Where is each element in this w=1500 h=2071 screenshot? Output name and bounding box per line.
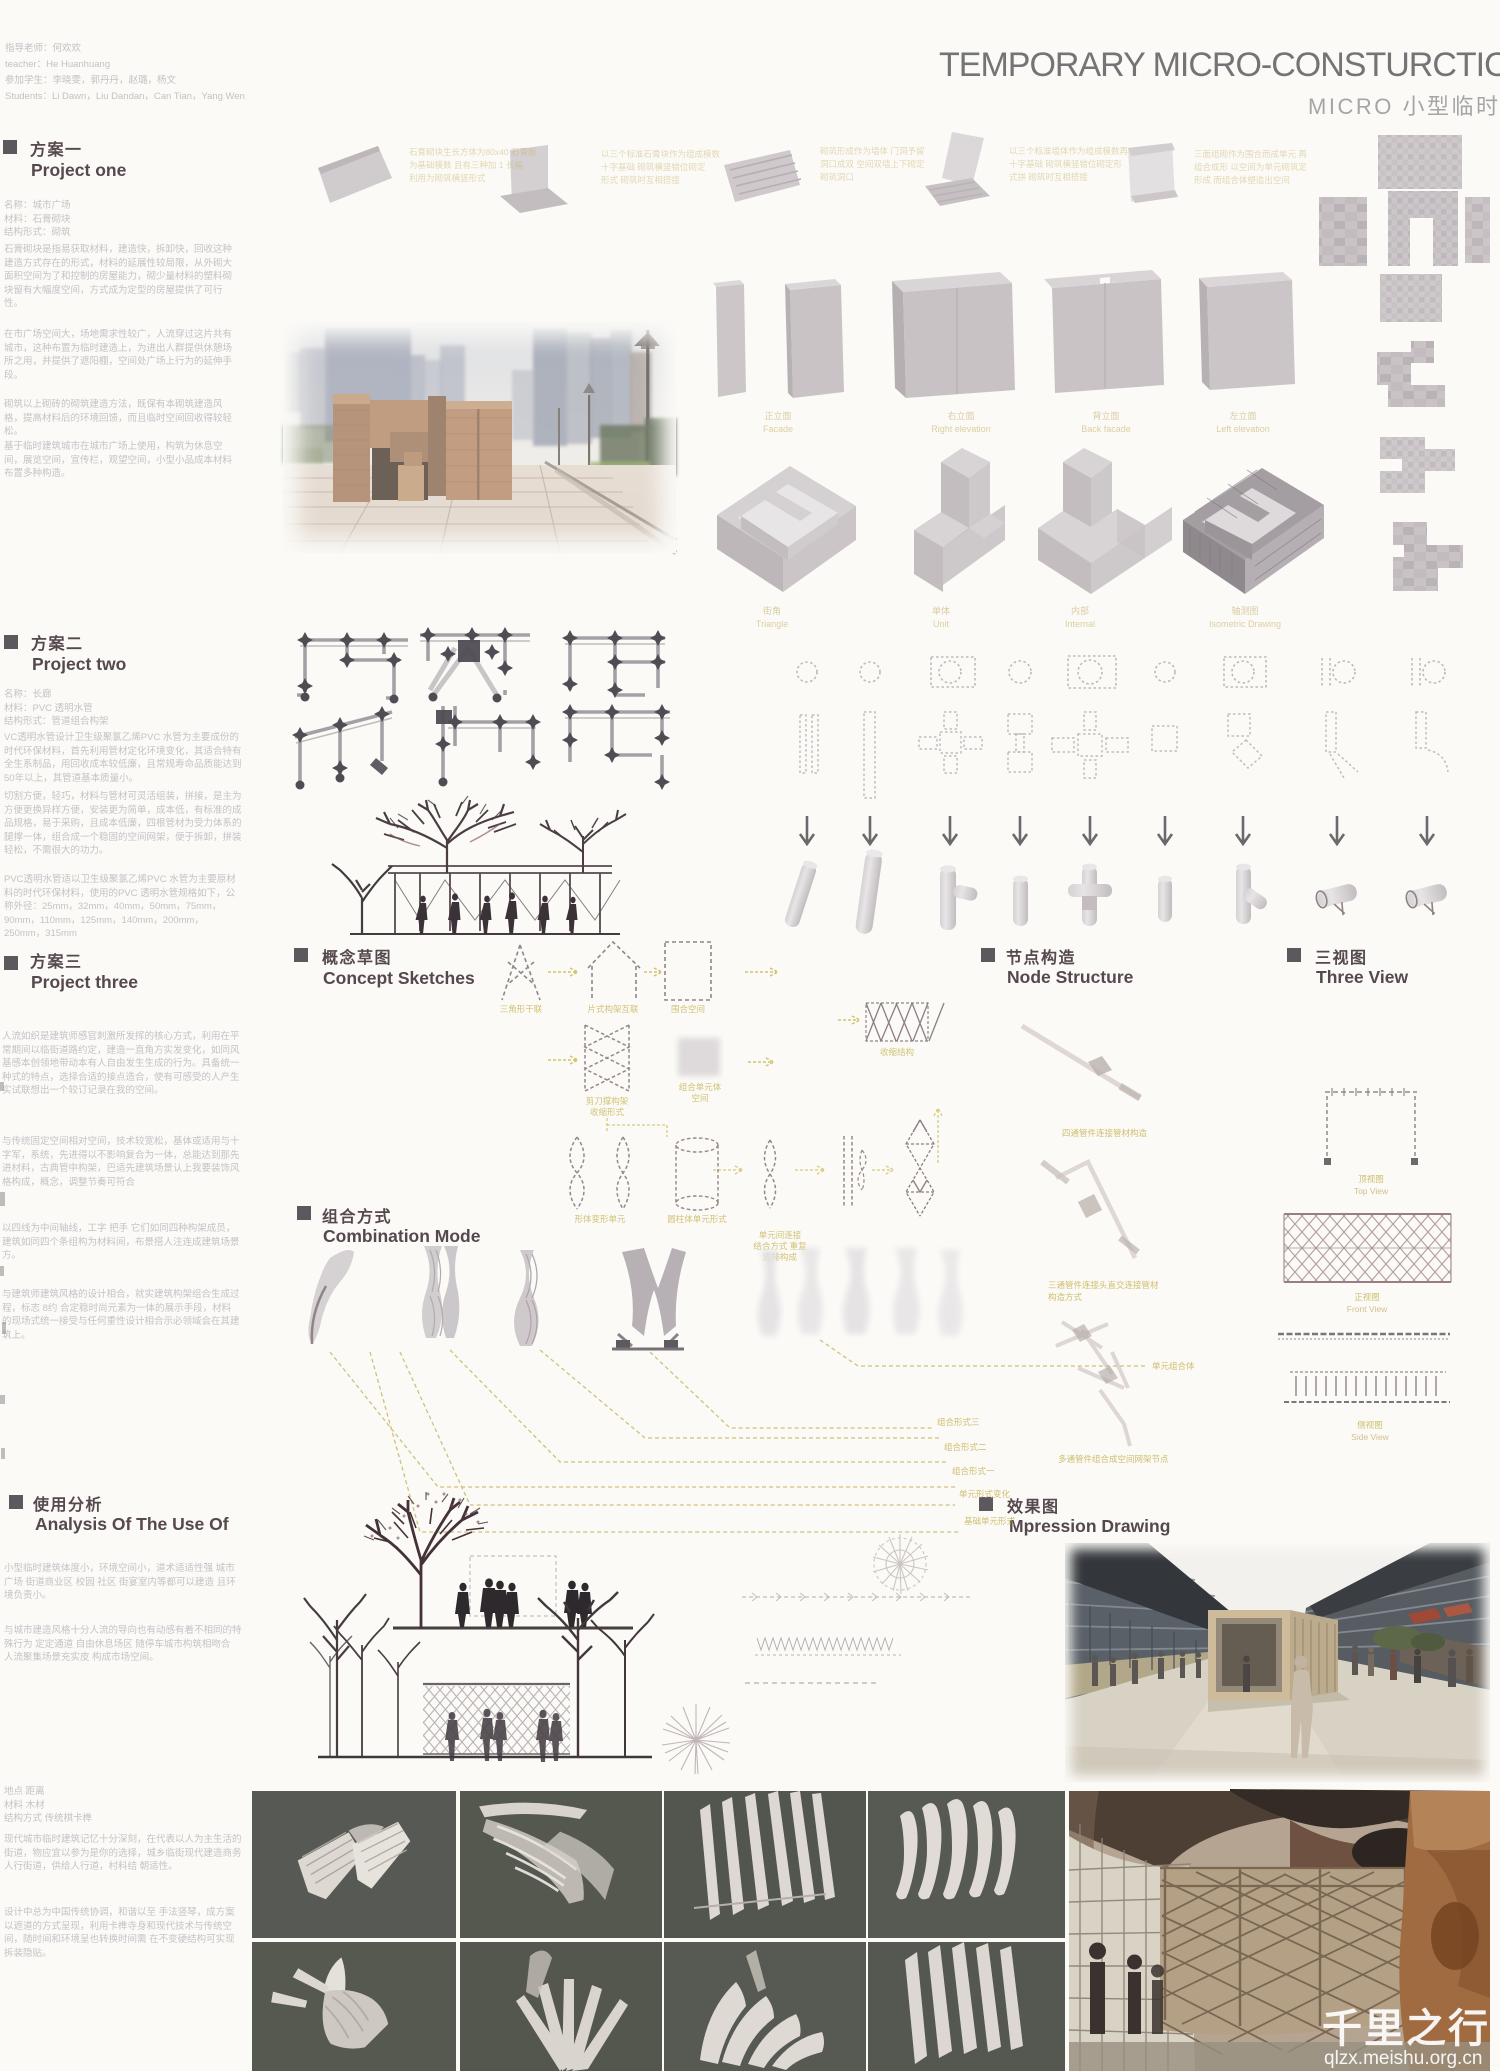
svg-text:街角: 街角 bbox=[763, 605, 781, 616]
svg-text:多通管件组合成空间网架节点: 多通管件组合成空间网架节点 bbox=[1058, 1454, 1169, 1464]
svg-text:结合方式 重复: 结合方式 重复 bbox=[753, 1241, 807, 1251]
svg-text:正立面: 正立面 bbox=[764, 410, 791, 421]
svg-text:单元组合体: 单元组合体 bbox=[1152, 1361, 1195, 1371]
svg-text:Back facade: Back facade bbox=[1081, 424, 1131, 434]
svg-text:石膏砌块生长方体为80x40 石膏板: 石膏砌块生长方体为80x40 石膏板 bbox=[409, 147, 537, 157]
svg-text:qlzx.meishu.org.cn: qlzx.meishu.org.cn bbox=[1324, 2048, 1482, 2069]
svg-text:Unit: Unit bbox=[933, 619, 950, 629]
svg-text:左立面: 左立面 bbox=[1229, 410, 1256, 421]
svg-text:式拼 砌筑时互相搭接: 式拼 砌筑时互相搭接 bbox=[1009, 172, 1088, 182]
svg-text:形式 砌筑时互相搭接: 形式 砌筑时互相搭接 bbox=[601, 175, 680, 185]
svg-text:围合空间: 围合空间 bbox=[671, 1004, 705, 1014]
svg-text:砌筑洞口: 砌筑洞口 bbox=[820, 172, 854, 182]
svg-text:十字基础 砌筑横竖错位砌定形: 十字基础 砌筑横竖错位砌定形 bbox=[1009, 159, 1122, 169]
svg-text:单体: 单体 bbox=[932, 605, 950, 616]
svg-text:组合形式二: 组合形式二 bbox=[944, 1442, 987, 1452]
svg-text:组合成形 以空间为单元砌筑定: 组合成形 以空间为单元砌筑定 bbox=[1194, 162, 1307, 172]
svg-text:四通管件连接管材构造: 四通管件连接管材构造 bbox=[1062, 1128, 1148, 1138]
svg-text:Front View: Front View bbox=[1347, 1304, 1388, 1314]
svg-text:基础单元形式: 基础单元形式 bbox=[964, 1516, 1016, 1526]
svg-text:三面组砌作为围合而成单元 再: 三面组砌作为围合而成单元 再 bbox=[1194, 149, 1307, 159]
svg-text:Internal: Internal bbox=[1065, 619, 1095, 629]
svg-text:利用为砌筑横竖形式: 利用为砌筑横竖形式 bbox=[409, 173, 486, 183]
svg-text:Side View: Side View bbox=[1351, 1432, 1390, 1442]
svg-text:收缩形式: 收缩形式 bbox=[590, 1107, 625, 1117]
svg-text:构造方式: 构造方式 bbox=[1048, 1292, 1083, 1302]
svg-text:右立面: 右立面 bbox=[947, 410, 974, 421]
svg-text:Right elevation: Right elevation bbox=[931, 424, 991, 434]
svg-text:单元形式变化: 单元形式变化 bbox=[959, 1489, 1011, 1499]
svg-text:顶视图: 顶视图 bbox=[1358, 1174, 1384, 1184]
svg-text:圆柱体单元形式: 圆柱体单元形式 bbox=[667, 1214, 727, 1224]
svg-text:十字基础 砌筑横竖错位砌定: 十字基础 砌筑横竖错位砌定 bbox=[601, 162, 706, 172]
svg-text:正视图: 正视图 bbox=[1354, 1292, 1380, 1302]
svg-text:空间: 空间 bbox=[691, 1093, 708, 1103]
svg-text:砌筑形成作为墙体 门洞予留: 砌筑形成作为墙体 门洞予留 bbox=[820, 146, 924, 156]
svg-text:Left elevation: Left elevation bbox=[1216, 424, 1270, 434]
svg-text:洞口成双 空间双墙上下砌定: 洞口成双 空间双墙上下砌定 bbox=[820, 159, 925, 169]
svg-text:Facade: Facade bbox=[763, 424, 793, 434]
svg-text:轴测图: 轴测图 bbox=[1231, 605, 1258, 616]
svg-text:以三个标准墙体作为组成模数再: 以三个标准墙体作为组成模数再 bbox=[1009, 146, 1129, 156]
svg-text:背立面: 背立面 bbox=[1092, 410, 1119, 421]
svg-text:千里之行: 千里之行 bbox=[1322, 2007, 1490, 2051]
svg-text:收缩结构: 收缩结构 bbox=[880, 1047, 914, 1057]
svg-text:Top View: Top View bbox=[1354, 1186, 1389, 1196]
svg-text:内部: 内部 bbox=[1071, 605, 1089, 616]
svg-text:形体变形单元: 形体变形单元 bbox=[574, 1214, 626, 1224]
svg-text:剪刀撑构架: 剪刀撑构架 bbox=[586, 1096, 629, 1106]
svg-text:片式构架互联: 片式构架互联 bbox=[587, 1004, 639, 1014]
svg-text:组合形式三: 组合形式三 bbox=[937, 1417, 980, 1427]
svg-text:三通管件连接头直交连接管材: 三通管件连接头直交连接管材 bbox=[1048, 1280, 1159, 1290]
svg-text:侧视图: 侧视图 bbox=[1357, 1420, 1383, 1430]
svg-text:为基础模数 且有三种加 1 长幅: 为基础模数 且有三种加 1 长幅 bbox=[409, 160, 523, 170]
svg-text:三角形干联: 三角形干联 bbox=[500, 1004, 543, 1014]
svg-text:以三个标准石膏块作为组成模数: 以三个标准石膏块作为组成模数 bbox=[601, 149, 721, 159]
svg-text:组合形式一: 组合形式一 bbox=[952, 1466, 995, 1476]
svg-text:形成 而组合体塑造出空间: 形成 而组合体塑造出空间 bbox=[1194, 175, 1290, 185]
svg-text:Triangle: Triangle bbox=[756, 619, 788, 629]
svg-text:单元间连接: 单元间连接 bbox=[759, 1230, 802, 1240]
svg-text:组合单元体: 组合单元体 bbox=[679, 1082, 722, 1092]
svg-text:Isometric Drawing: Isometric Drawing bbox=[1209, 619, 1281, 629]
